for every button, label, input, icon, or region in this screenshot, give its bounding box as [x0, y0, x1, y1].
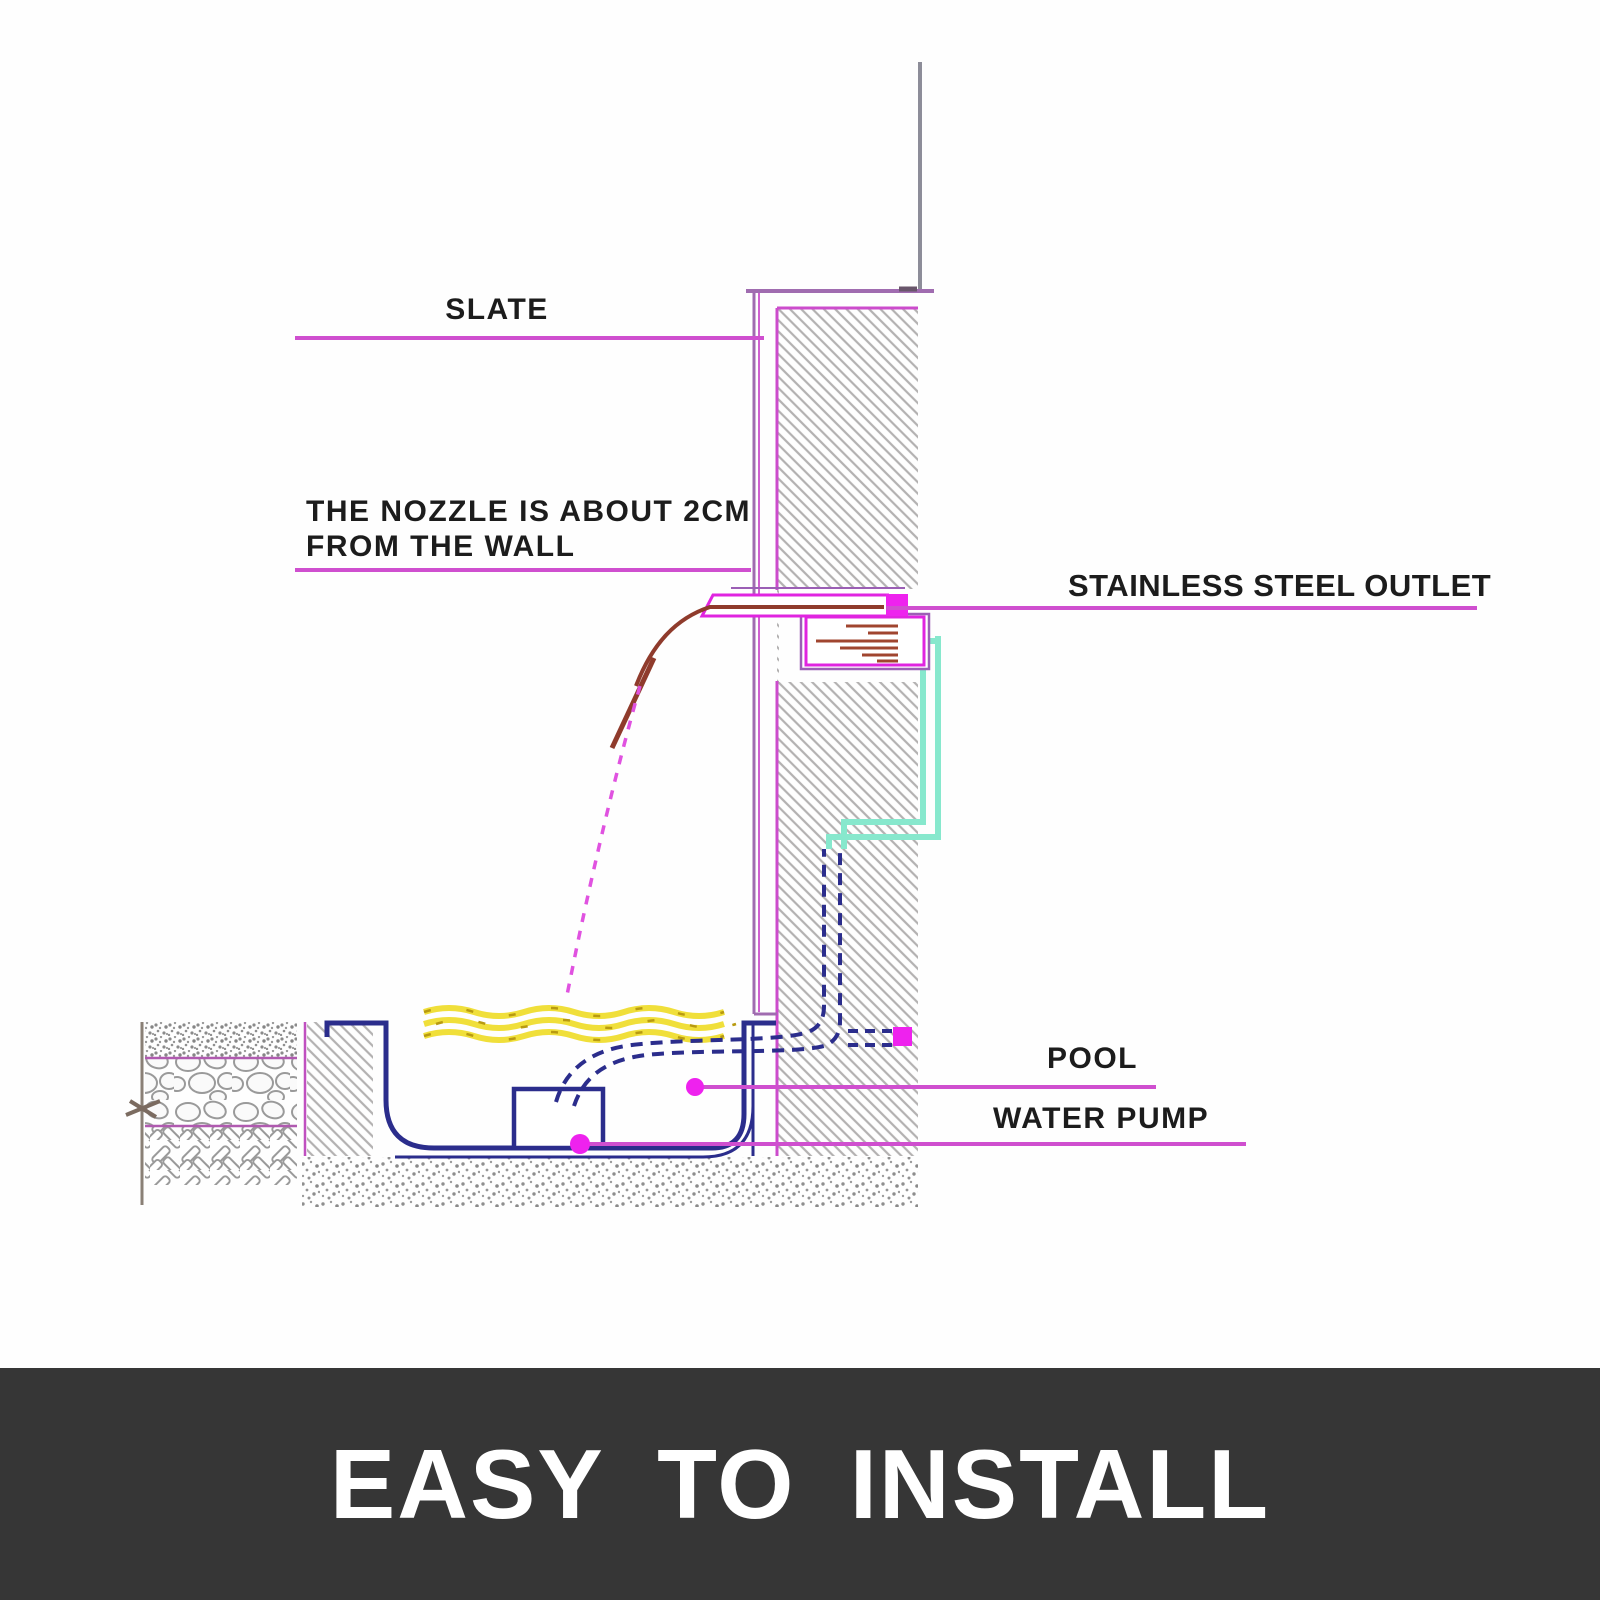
ground-layers-section — [126, 1022, 297, 1205]
outlet-marker — [886, 594, 908, 616]
pool-left-curb — [305, 1022, 373, 1156]
label-nozzle-line2: FROM THE WALL — [306, 530, 575, 563]
pool-water-surface — [424, 1008, 736, 1040]
water-pump-marker-dot — [570, 1134, 590, 1154]
caption-banner: EASY TO INSTALL — [0, 1368, 1600, 1600]
gravel-base — [302, 1157, 918, 1207]
cobblestone-layer — [145, 1058, 297, 1125]
label-slate: SLATE — [445, 293, 549, 326]
subbase-layer — [145, 1125, 297, 1185]
easy-install-infographic: SLATE THE NOZZLE IS ABOUT 2CM FROM THE W… — [0, 0, 1600, 1600]
stainless-steel-outlet — [702, 588, 929, 669]
label-pool: POOL — [1047, 1042, 1138, 1075]
installation-diagram: SLATE THE NOZZLE IS ABOUT 2CM FROM THE W… — [0, 0, 1600, 1368]
label-water-pump: WATER PUMP — [993, 1102, 1209, 1135]
label-stainless-steel-outlet: STAINLESS STEEL OUTLET — [1068, 568, 1491, 603]
label-nozzle-line1: THE NOZZLE IS ABOUT 2CM — [306, 495, 751, 528]
caption-text: EASY TO INSTALL — [330, 1435, 1270, 1533]
pipe-junction-marker — [893, 1027, 912, 1046]
pool-marker-dot — [686, 1078, 704, 1096]
topsoil-layer — [145, 1022, 297, 1058]
